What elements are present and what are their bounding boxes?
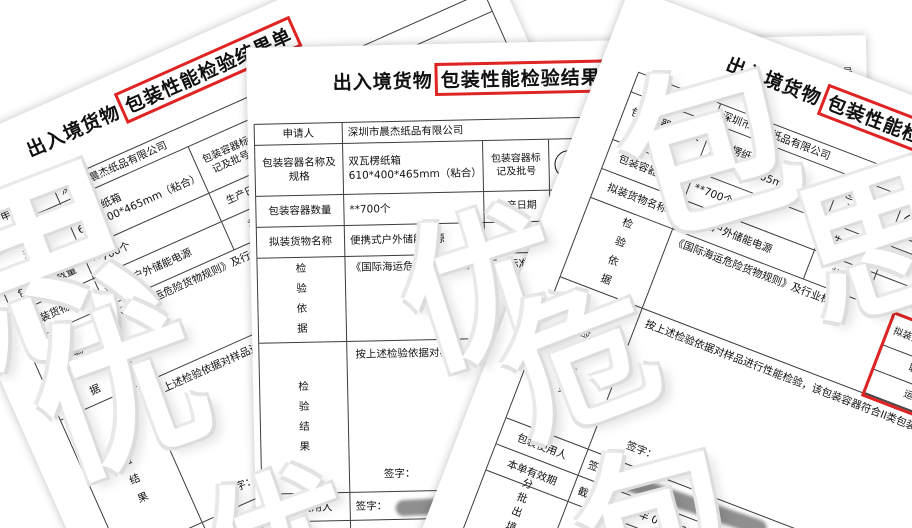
inspection-result-label: 检验结果 [259,342,350,494]
result-sign-label: 签字： [384,467,416,482]
un-circle-icon: u n [896,210,912,246]
form-title-prefix: 出入境货物 [22,97,124,162]
container-value: 双瓦楞纸箱 610*400*465mm（粘合） [343,141,484,194]
result-sign-label: 签字： [224,473,259,499]
customs-round-stamp: 中华人民共和国海关 检验检疫专用章 [900,472,912,528]
scanned-documents-collage: 出入境货物 包装性能检验结果单 编号 申请人 深圳市晨杰纸品有限公司 包装容器名… [0,0,912,528]
form-title-prefix: 出入境货物 [723,49,826,110]
un-circle-n: n [908,227,912,238]
package-user-label: 包装使用人 [262,493,351,522]
form-title-prefix: 出入境货物 [332,66,433,95]
quantity-value: **700个 [344,192,485,225]
goods-name-value: 便携式户外储能电源 [345,223,486,256]
mark-batch-label: 包装容器标记及批号 [483,140,550,191]
container-label: 包装容器名称及规格 [255,144,344,196]
inspection-basis-label: 检验依据 [257,257,347,343]
validity-label: 本单有效期 [263,521,352,528]
applicant-label: 申请人 [255,123,343,145]
result-sign-label: 签字： [624,439,658,464]
goods-name-label: 拟装货物名称 [257,226,346,258]
user-sign-label: 签字： [586,458,620,483]
quantity-label: 包装容器数量 [256,195,345,227]
user-sign-label: 签字： [355,499,387,514]
